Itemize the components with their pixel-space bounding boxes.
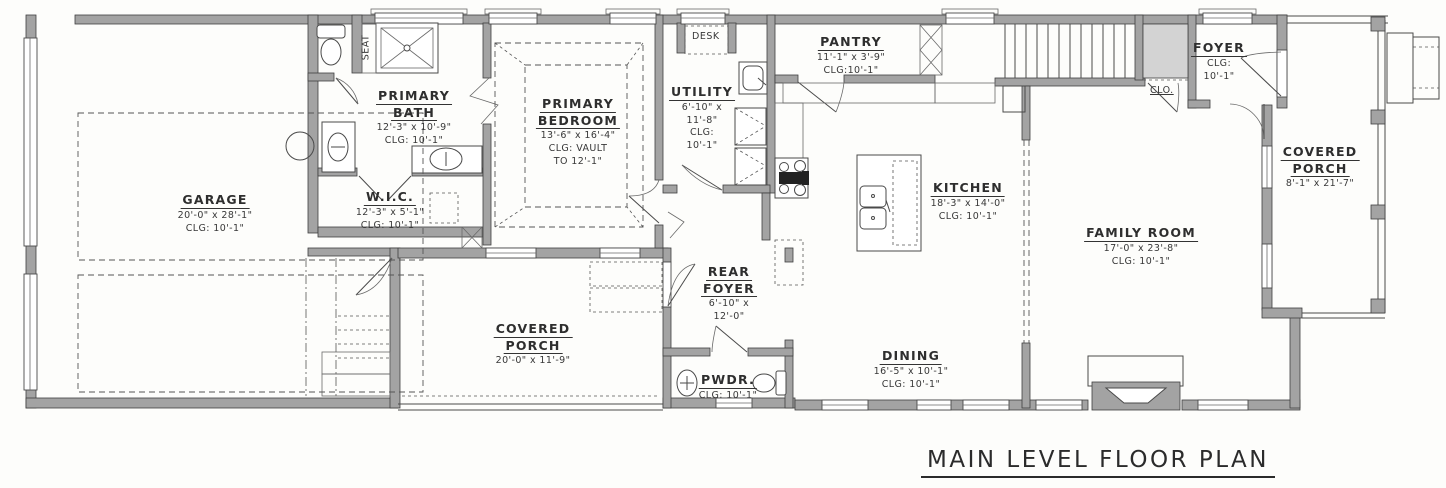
chase-icon [920,25,942,75]
porch-column-icon [1371,299,1385,313]
room-name: BATH [391,105,437,122]
room-name: PORCH [503,338,562,355]
seat-label: SEAT [360,35,371,61]
window-icon [606,9,660,24]
entry-steps-icon [1387,33,1439,103]
window-icon [1198,400,1248,410]
window-icon [677,9,729,24]
room-clg: CLG: [1207,58,1231,70]
room-label-kitchen: KITCHEN 18'-3" x 14'-0" CLG: 10'-1" [931,180,1006,222]
door-swing-icon [798,82,844,112]
wic-dresser-outline [430,193,458,223]
garage-door-icon [24,38,37,390]
door-swing-icon [356,258,392,295]
room-dims: 16'-5" x 10'-1" [874,366,949,378]
range-icon [775,158,809,198]
room-dims: 17'-0" x 23'-8" [1104,243,1179,255]
porch-column-icon [1371,110,1385,124]
clo-label: CLO. [1150,85,1174,96]
room-dims: 12'-0" [714,311,745,323]
window-icon [600,248,640,258]
door-swings [336,50,1287,352]
pedestal-sink-icon [677,370,697,396]
room-label-utility: UTILITY 6'-10" x 11'-8" CLG: 10'-1" [669,84,735,152]
garage-steps-icon [306,258,390,396]
room-name: COVERED [494,321,573,338]
room-label-covered-porch-right: COVERED PORCH 8'-1" x 21'-7" [1281,144,1360,190]
room-label-dining: DINING 16'-5" x 10'-1" CLG: 10'-1" [874,348,949,390]
floor-plan-canvas: GARAGE 20'-0" x 28'-1" CLG: 10'-1" PRIMA… [0,0,1446,488]
room-clg: CLG: [690,127,714,139]
room-label-foyer: FOYER CLG: 10'-1" [1191,40,1247,82]
door-swing-icon [712,326,747,352]
room-dims: 13'-6" x 16'-4" [541,130,616,142]
room-clg: CLG: VAULT [549,143,608,155]
room-name: GARAGE [180,192,249,209]
vanity-sink-icon [412,146,482,173]
room-name: COVERED [1281,144,1360,161]
shower-icon [362,23,438,73]
window-icon [917,400,951,410]
room-name: DINING [880,348,942,365]
room-label-garage: GARAGE 20'-0" x 28'-1" CLG: 10'-1" [178,192,253,234]
room-name: FOYER [1191,40,1247,57]
porch-column-icon [1371,205,1385,219]
room-dims: 11'-8" [687,115,718,127]
room-name: PANTRY [818,34,884,51]
window-icon [1262,244,1272,288]
stairs-icon [1003,24,1125,112]
room-label-pwdr: PWDR. CLG: 10'-1" [699,372,757,402]
room-name: BEDROOM [536,113,620,130]
room-name: PWDR. [699,372,757,389]
room-clg: 10'-1" [1204,71,1235,83]
window-icon [822,400,868,410]
vanity-sink-icon [322,122,355,172]
room-name: W.I.C. [364,189,416,206]
utility-sink-icon [739,62,767,94]
window-icon [942,9,998,24]
window-icon [485,9,541,24]
room-clg: 10'-1" [687,140,718,152]
room-dims: 12'-3" x 5'-1" [356,207,424,219]
door-swing-icon [336,78,358,104]
room-label-family-room: FAMILY ROOM 17'-0" x 23'-8" CLG: 10'-1" [1084,225,1198,267]
room-name: FOYER [701,281,757,298]
room-dims: 6'-10" x [682,102,722,114]
room-clg: CLG: 10'-1" [1112,256,1170,268]
window-icon [1262,146,1272,188]
washer-icon [735,108,766,145]
room-clg: CLG: 10'-1" [882,379,940,391]
room-label-pantry: PANTRY 11'-1" x 3'-9" CLG:10'-1" [817,34,885,76]
room-name: UTILITY [669,84,735,101]
desk-label: DESK [692,31,720,42]
room-clg: CLG: 10'-1" [361,220,419,232]
closet [1143,24,1188,80]
toilet-icon [753,371,786,395]
window-icon [486,248,536,258]
room-label-covered-porch-rear: COVERED PORCH 20'-0" x 11'-9" [494,321,573,367]
window-icon [963,400,1009,410]
room-name: KITCHEN [931,180,1005,197]
room-dims: 11'-1" x 3'-9" [817,52,885,64]
room-clg: CLG: 10'-1" [939,211,997,223]
ceiling-break-line [1024,140,1029,343]
room-label-primary-bedroom: PRIMARY BEDROOM 13'-6" x 16'-4" CLG: VAU… [536,96,620,168]
room-clg: CLG: 10'-1" [699,390,757,402]
plan-title: MAIN LEVEL FLOOR PLAN [921,447,1275,478]
door-swing-icon [629,180,659,223]
toilet-icon [317,25,345,65]
room-clg: TO 12'-1" [554,156,602,168]
porch-column-icon [1371,17,1385,31]
window-icon [1199,9,1256,24]
room-dims: 12'-3" x 10'-9" [377,122,452,134]
room-clg: CLG: 10'-1" [385,135,443,147]
room-clg: CLG:10'-1" [823,65,878,77]
room-label-rear-foyer: REAR FOYER 6'-10" x 12'-0" [701,264,757,323]
room-dims: 18'-3" x 14'-0" [931,198,1006,210]
room-name: PORCH [1290,161,1349,178]
cased-opening-icon [668,212,684,238]
fireplace-icon [1088,356,1183,410]
door-swing-icon [663,262,695,307]
room-dims: 8'-1" x 21'-7" [1286,178,1354,190]
room-name: PRIMARY [376,88,452,105]
room-dims: 20'-0" x 11'-9" [496,355,571,367]
cased-opening-icon [470,78,498,124]
dryer-icon [735,148,766,185]
window-icon [1036,400,1082,410]
room-dims: 20'-0" x 28'-1" [178,210,253,222]
window-icon [371,9,467,24]
room-name: REAR [706,264,752,281]
room-clg: CLG: 10'-1" [186,223,244,235]
room-label-primary-bath: PRIMARY BATH 12'-3" x 10'-9" CLG: 10'-1" [376,88,452,147]
room-dims: 6'-10" x [709,298,749,310]
door-swing-icon [1230,104,1264,139]
door-swing-icon [682,165,722,190]
front-door-icon [1241,50,1287,97]
room-label-wic: W.I.C. 12'-3" x 5'-1" CLG: 10'-1" [356,189,424,231]
room-name: PRIMARY [540,96,616,113]
room-name: FAMILY ROOM [1084,225,1198,242]
